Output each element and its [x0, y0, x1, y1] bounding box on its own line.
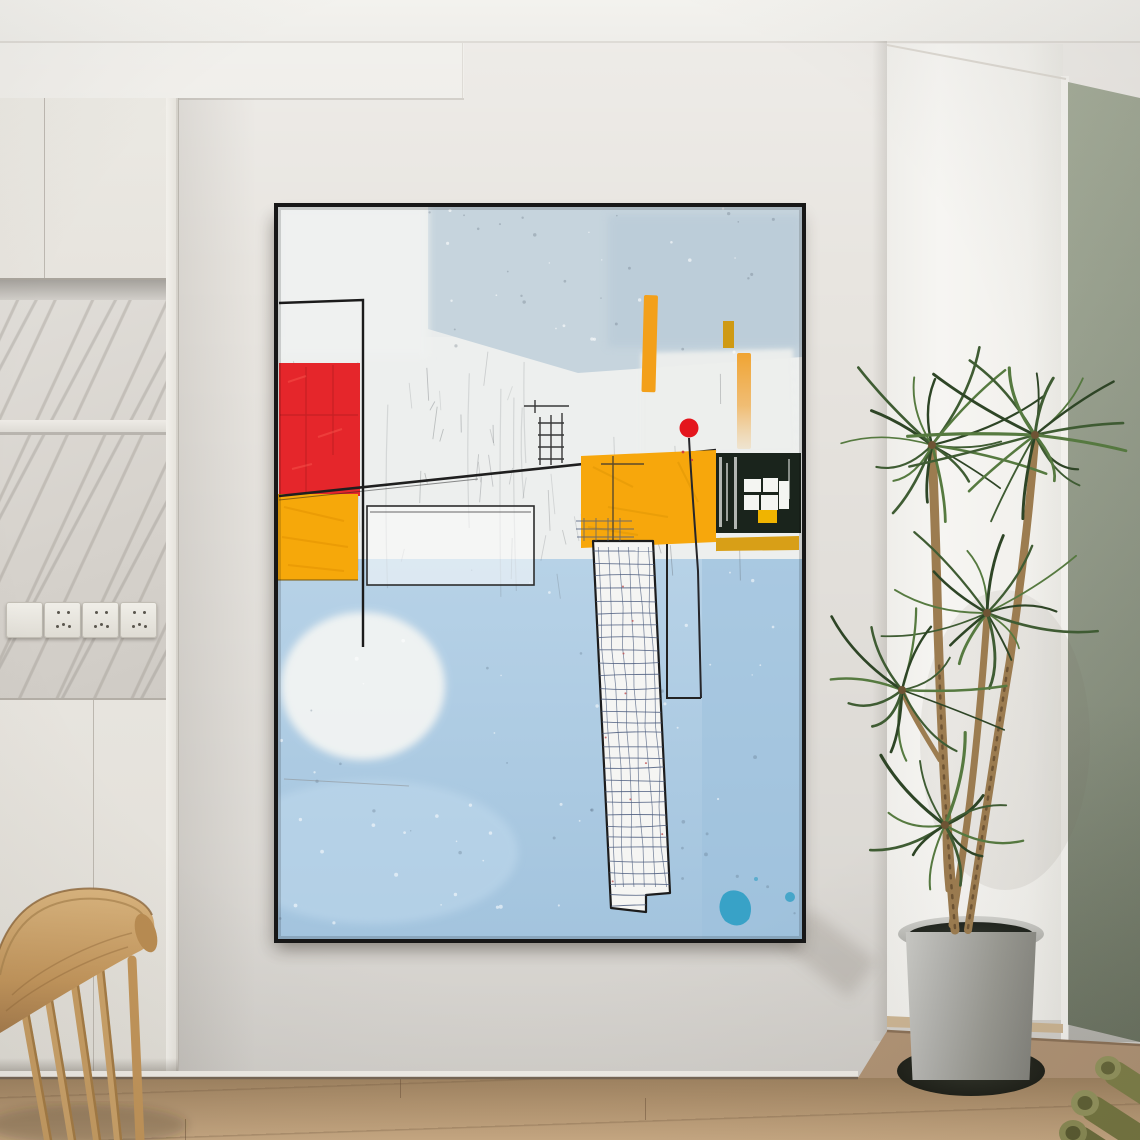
art-red-speck: [682, 451, 685, 454]
outlet-socket-plate: [120, 602, 157, 638]
art-orange-bar-tall: [641, 295, 658, 392]
green-fabric-rolls: [1028, 1028, 1140, 1140]
plant-stems: [903, 440, 1035, 930]
art-white-topleft: [278, 207, 428, 357]
outlet-socket-plate: [44, 602, 81, 638]
roll-end-core: [1078, 1096, 1093, 1110]
art-yellow-left-block: [278, 494, 358, 580]
outlet-blank-plate: [6, 602, 43, 638]
roll-end-core: [1066, 1126, 1081, 1140]
outlet-strip: [6, 602, 156, 636]
room-photo: [0, 0, 1140, 1140]
roll-end-core: [1101, 1062, 1115, 1075]
marble-back-panel: [0, 300, 168, 698]
wooden-chair: [0, 855, 202, 1140]
dracaena-plant: [690, 330, 1140, 960]
plant-leaves: [831, 347, 1126, 889]
art-blue-patch: [608, 215, 802, 347]
cabinet-soffit: [0, 43, 464, 100]
upper-cabinet-doors: [0, 98, 168, 280]
niche-shelf: [0, 420, 168, 435]
art-red-block: [279, 363, 360, 496]
art-sketch-rect: [367, 506, 534, 585]
ceiling: [0, 0, 1140, 43]
soffit-edge-line: [462, 43, 463, 98]
outlet-socket-plate: [82, 602, 119, 638]
